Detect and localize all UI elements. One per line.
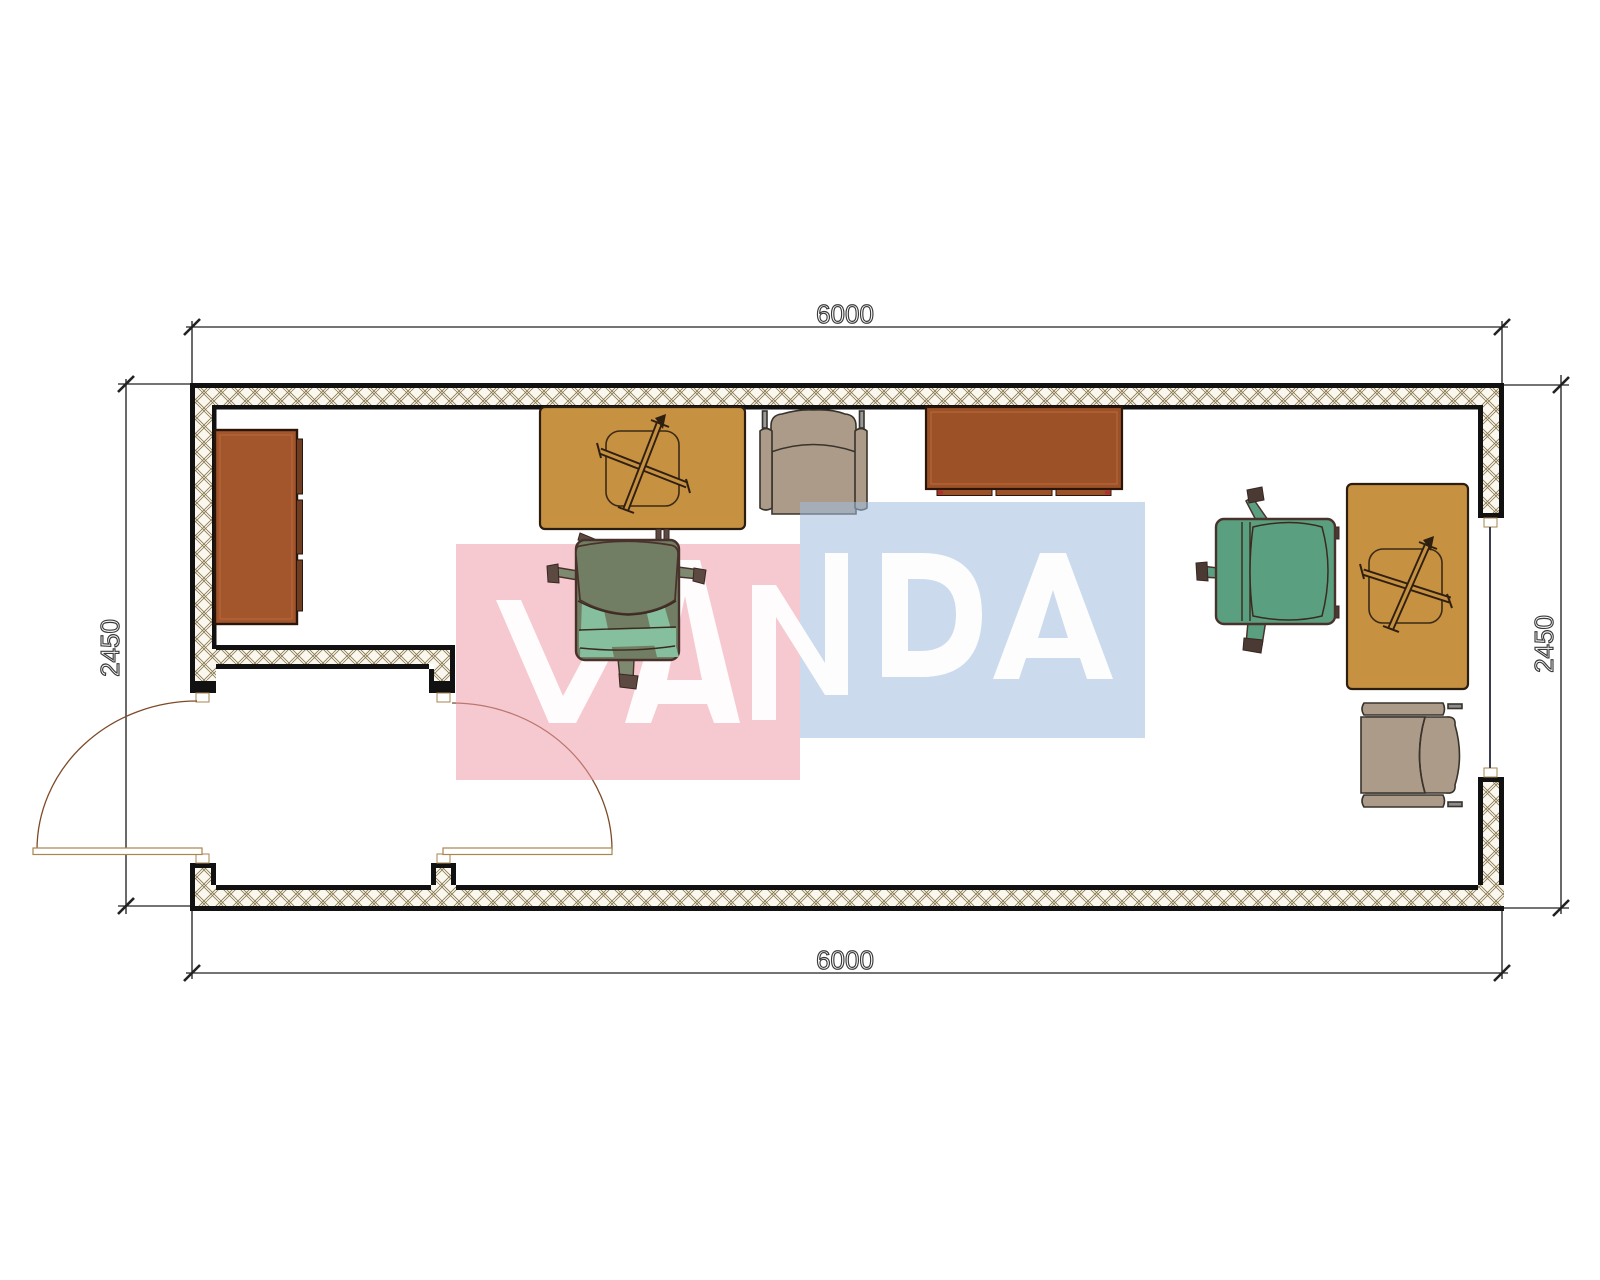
svg-text:6000: 6000 xyxy=(816,945,874,975)
svg-text:6000: 6000 xyxy=(816,299,874,329)
svg-text:2450: 2450 xyxy=(95,619,125,677)
svg-text:2450: 2450 xyxy=(1529,615,1559,673)
